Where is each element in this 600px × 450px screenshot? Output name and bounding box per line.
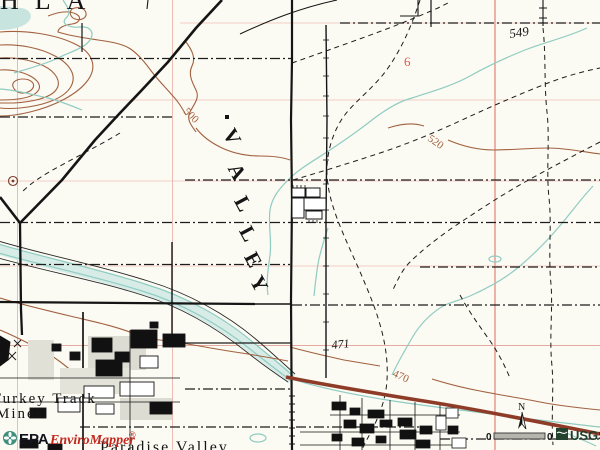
topo-map-canvas[interactable]: HLA V A L L E Y 549 471 500 520 470 6 Tu… [0, 0, 600, 450]
mines-label: Mines [0, 406, 44, 422]
spot-elevation-471: 471 [331, 336, 350, 352]
north-arrow-label: N [518, 402, 525, 413]
epa-enviromapper-logo: EPA EnviroMapper ® [3, 430, 136, 448]
enviromapper-logo-text: EnviroMapper [49, 433, 135, 448]
partial-top-left-label: HLA [0, 0, 101, 15]
scale-left-label: 0 [486, 432, 492, 443]
usgs-logo-text: USGS [570, 428, 600, 443]
turkey-track-label: Turkey Track [0, 391, 97, 407]
registered-mark: ® [129, 430, 136, 440]
epa-logo-text: EPA [19, 431, 49, 448]
section-number-6: 6 [404, 54, 411, 69]
usgs-logo-icon [556, 428, 568, 440]
enviromapper-map-view: HLA V A L L E Y 549 471 500 520 470 6 Tu… [0, 0, 600, 450]
spot-elevation-549: 549 [508, 23, 530, 41]
scale-right-label: 0 [547, 432, 553, 443]
